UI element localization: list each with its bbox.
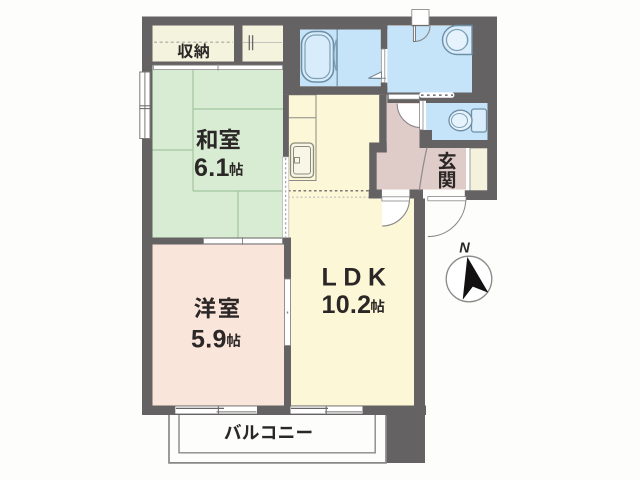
svg-text:LDK: LDK [322,264,393,292]
svg-text:6.1: 6.1 [194,154,230,182]
svg-text:N: N [459,241,470,257]
svg-text:10.2: 10.2 [322,291,372,319]
svg-text:5.9: 5.9 [191,326,227,354]
